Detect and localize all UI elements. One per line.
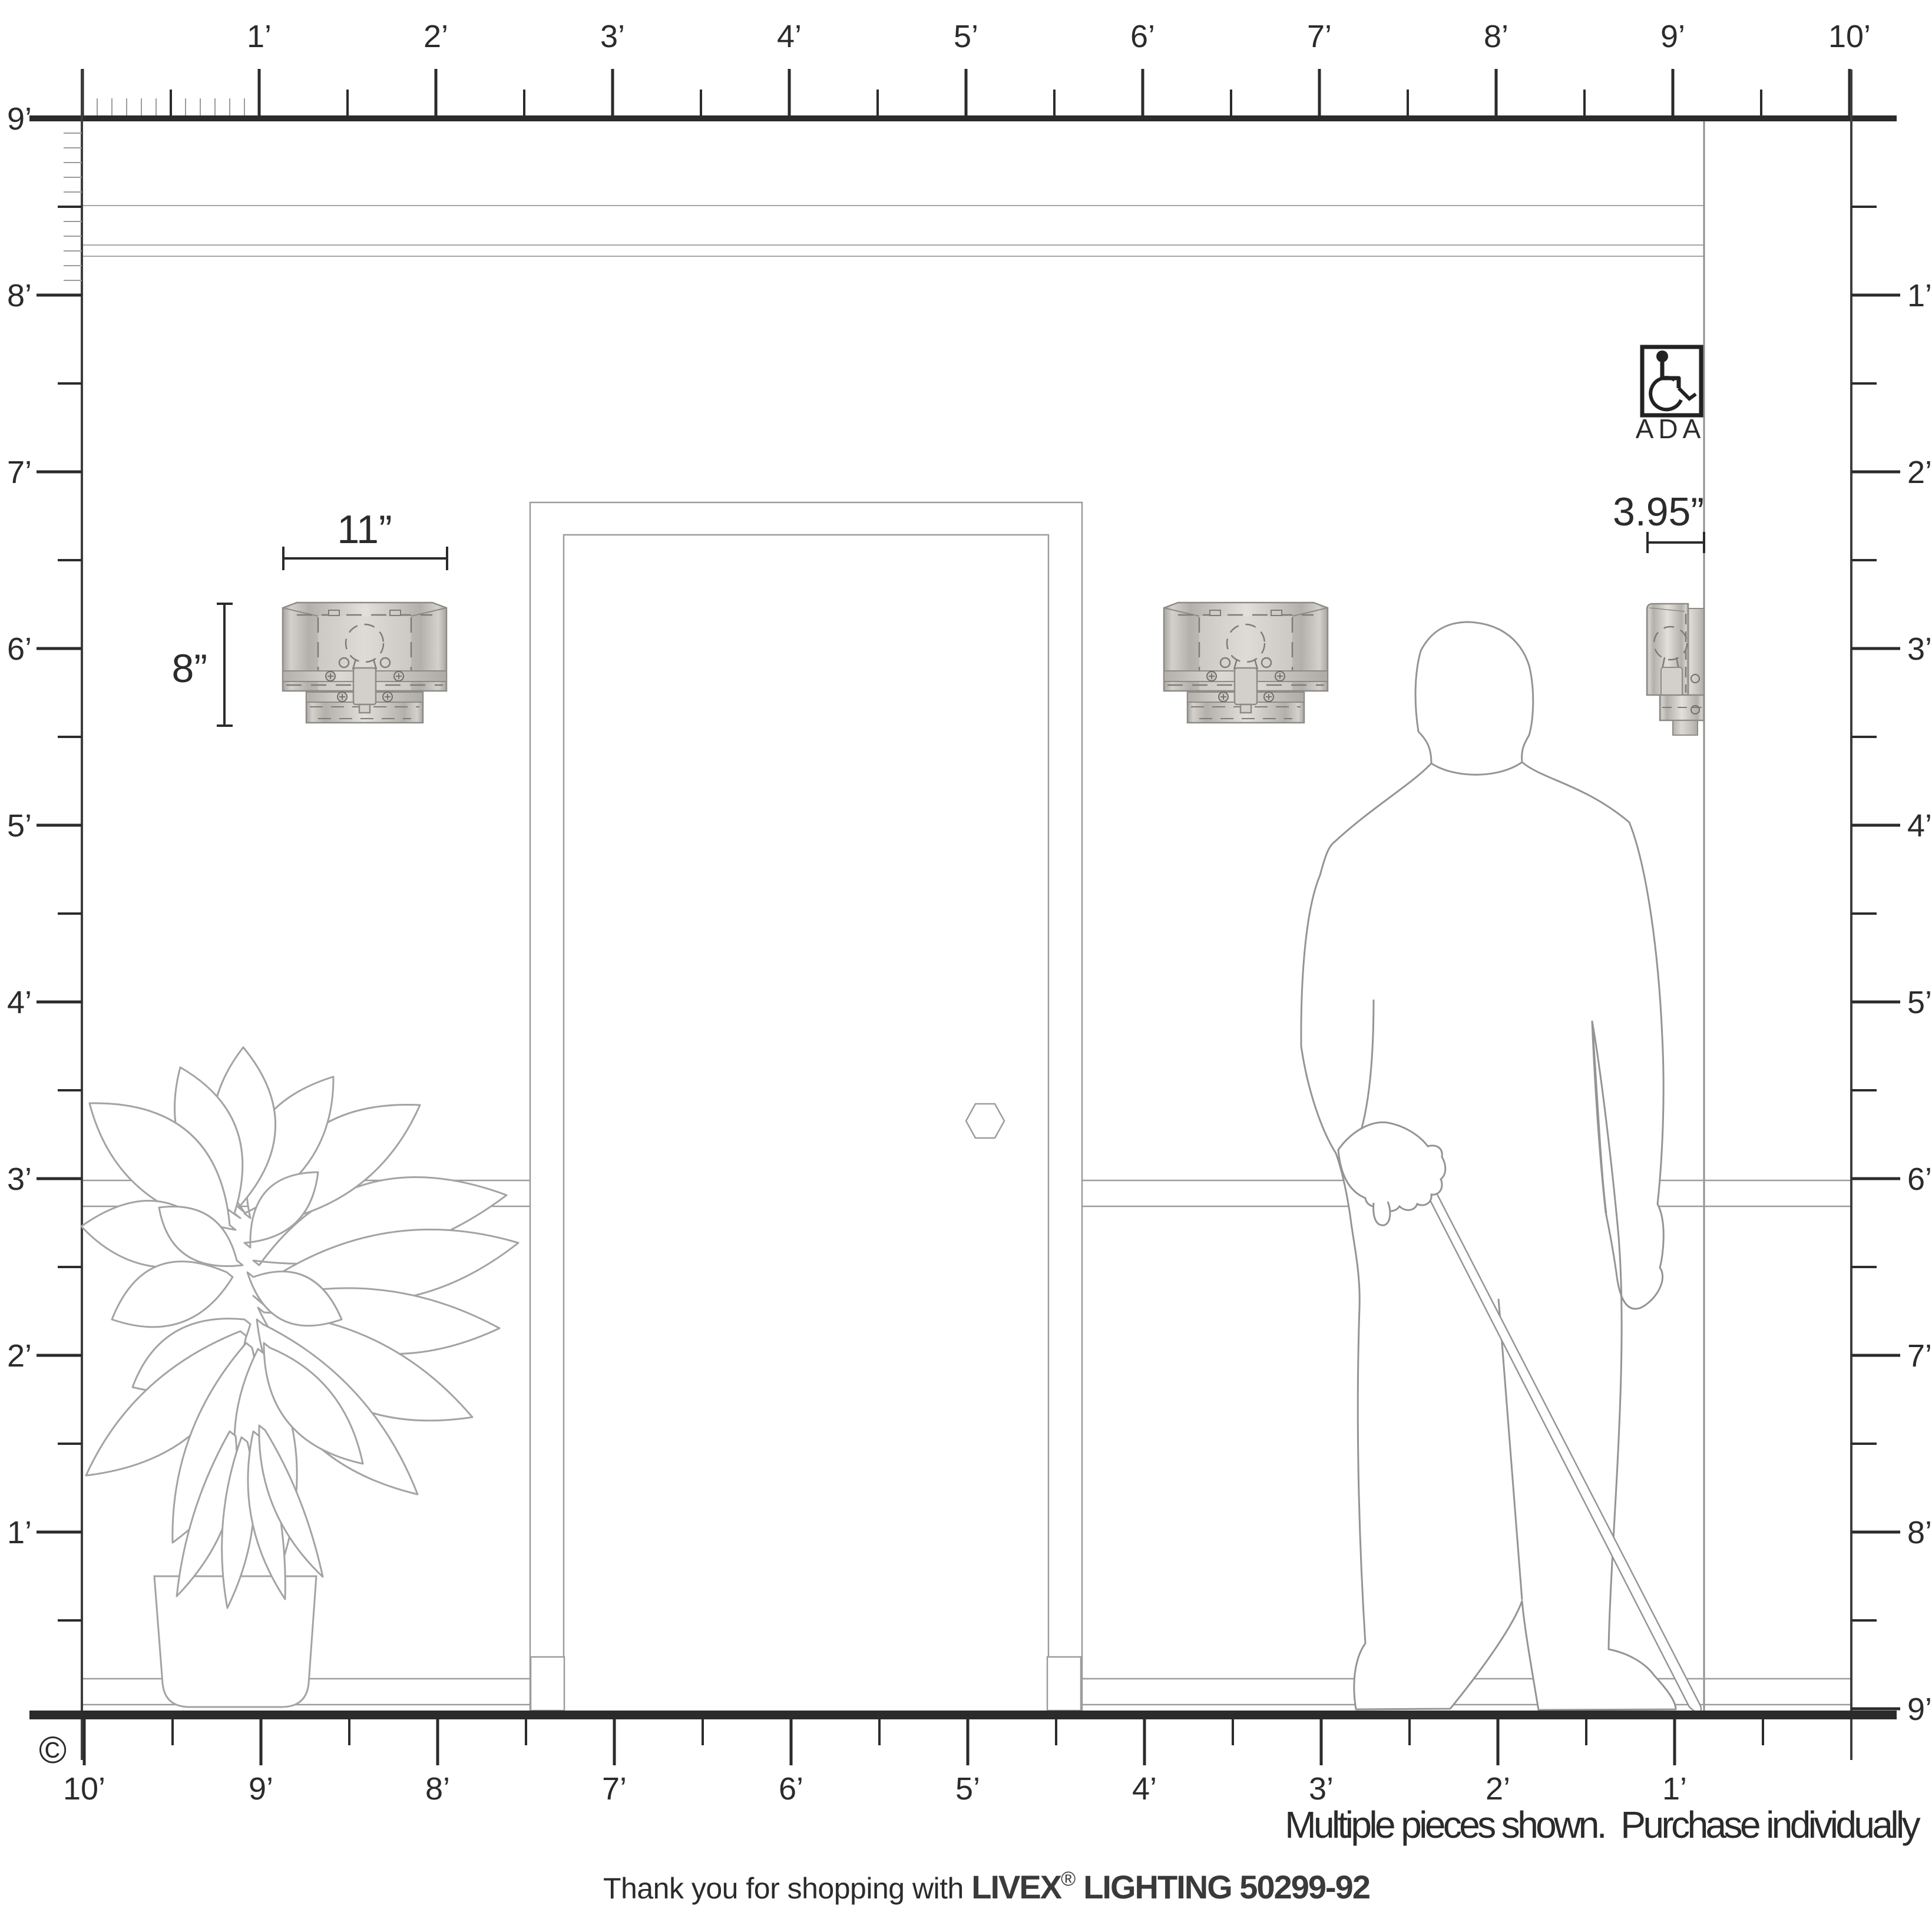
svg-text:7’: 7’ [1307,19,1332,54]
svg-text:7’: 7’ [1907,1338,1932,1374]
svg-text:2’: 2’ [1907,455,1932,490]
svg-text:4’: 4’ [1907,808,1932,843]
svg-text:6’: 6’ [1907,1162,1932,1197]
svg-text:3’: 3’ [600,19,625,54]
svg-text:8”: 8” [172,646,207,691]
svg-text:1’: 1’ [7,1515,32,1550]
svg-text:10’: 10’ [1828,19,1871,54]
svg-text:9’: 9’ [1907,1692,1932,1727]
svg-text:6’: 6’ [779,1771,803,1807]
svg-text:©: © [39,1729,67,1771]
svg-text:ADA: ADA [1636,413,1706,444]
svg-text:1’: 1’ [1662,1771,1687,1807]
svg-text:4’: 4’ [777,19,802,54]
svg-text:Multiple pieces shown. Purchas: Multiple pieces shown. Purchase individu… [1285,1804,1920,1846]
svg-text:10’: 10’ [63,1771,105,1807]
svg-text:8’: 8’ [1907,1515,1932,1550]
svg-text:3’: 3’ [1907,631,1932,667]
svg-text:7’: 7’ [602,1771,627,1807]
svg-text:4’: 4’ [1132,1771,1157,1807]
svg-text:9’: 9’ [1660,19,1685,54]
svg-text:1’: 1’ [1907,278,1932,313]
svg-text:5’: 5’ [955,1771,980,1807]
svg-text:11”: 11” [337,507,392,552]
svg-text:5’: 5’ [954,19,978,54]
svg-text:8’: 8’ [425,1771,450,1807]
svg-text:9’: 9’ [7,101,32,137]
svg-text:6’: 6’ [7,631,32,667]
svg-text:7’: 7’ [7,455,32,490]
svg-text:9’: 9’ [249,1771,273,1807]
svg-text:2’: 2’ [7,1338,32,1374]
svg-text:6’: 6’ [1130,19,1155,54]
svg-text:2’: 2’ [424,19,448,54]
svg-text:Thank you for shopping with LI: Thank you for shopping with LIVEX® LIGHT… [603,1868,1369,1905]
svg-text:3’: 3’ [1309,1771,1334,1807]
svg-text:5’: 5’ [1907,985,1932,1020]
svg-text:3’: 3’ [7,1162,32,1197]
svg-text:2’: 2’ [1486,1771,1510,1807]
svg-text:5’: 5’ [7,808,32,843]
svg-text:8’: 8’ [7,278,32,313]
svg-text:3.95”: 3.95” [1613,489,1704,534]
svg-text:1’: 1’ [247,19,272,54]
svg-text:8’: 8’ [1484,19,1508,54]
svg-text:4’: 4’ [7,985,32,1020]
